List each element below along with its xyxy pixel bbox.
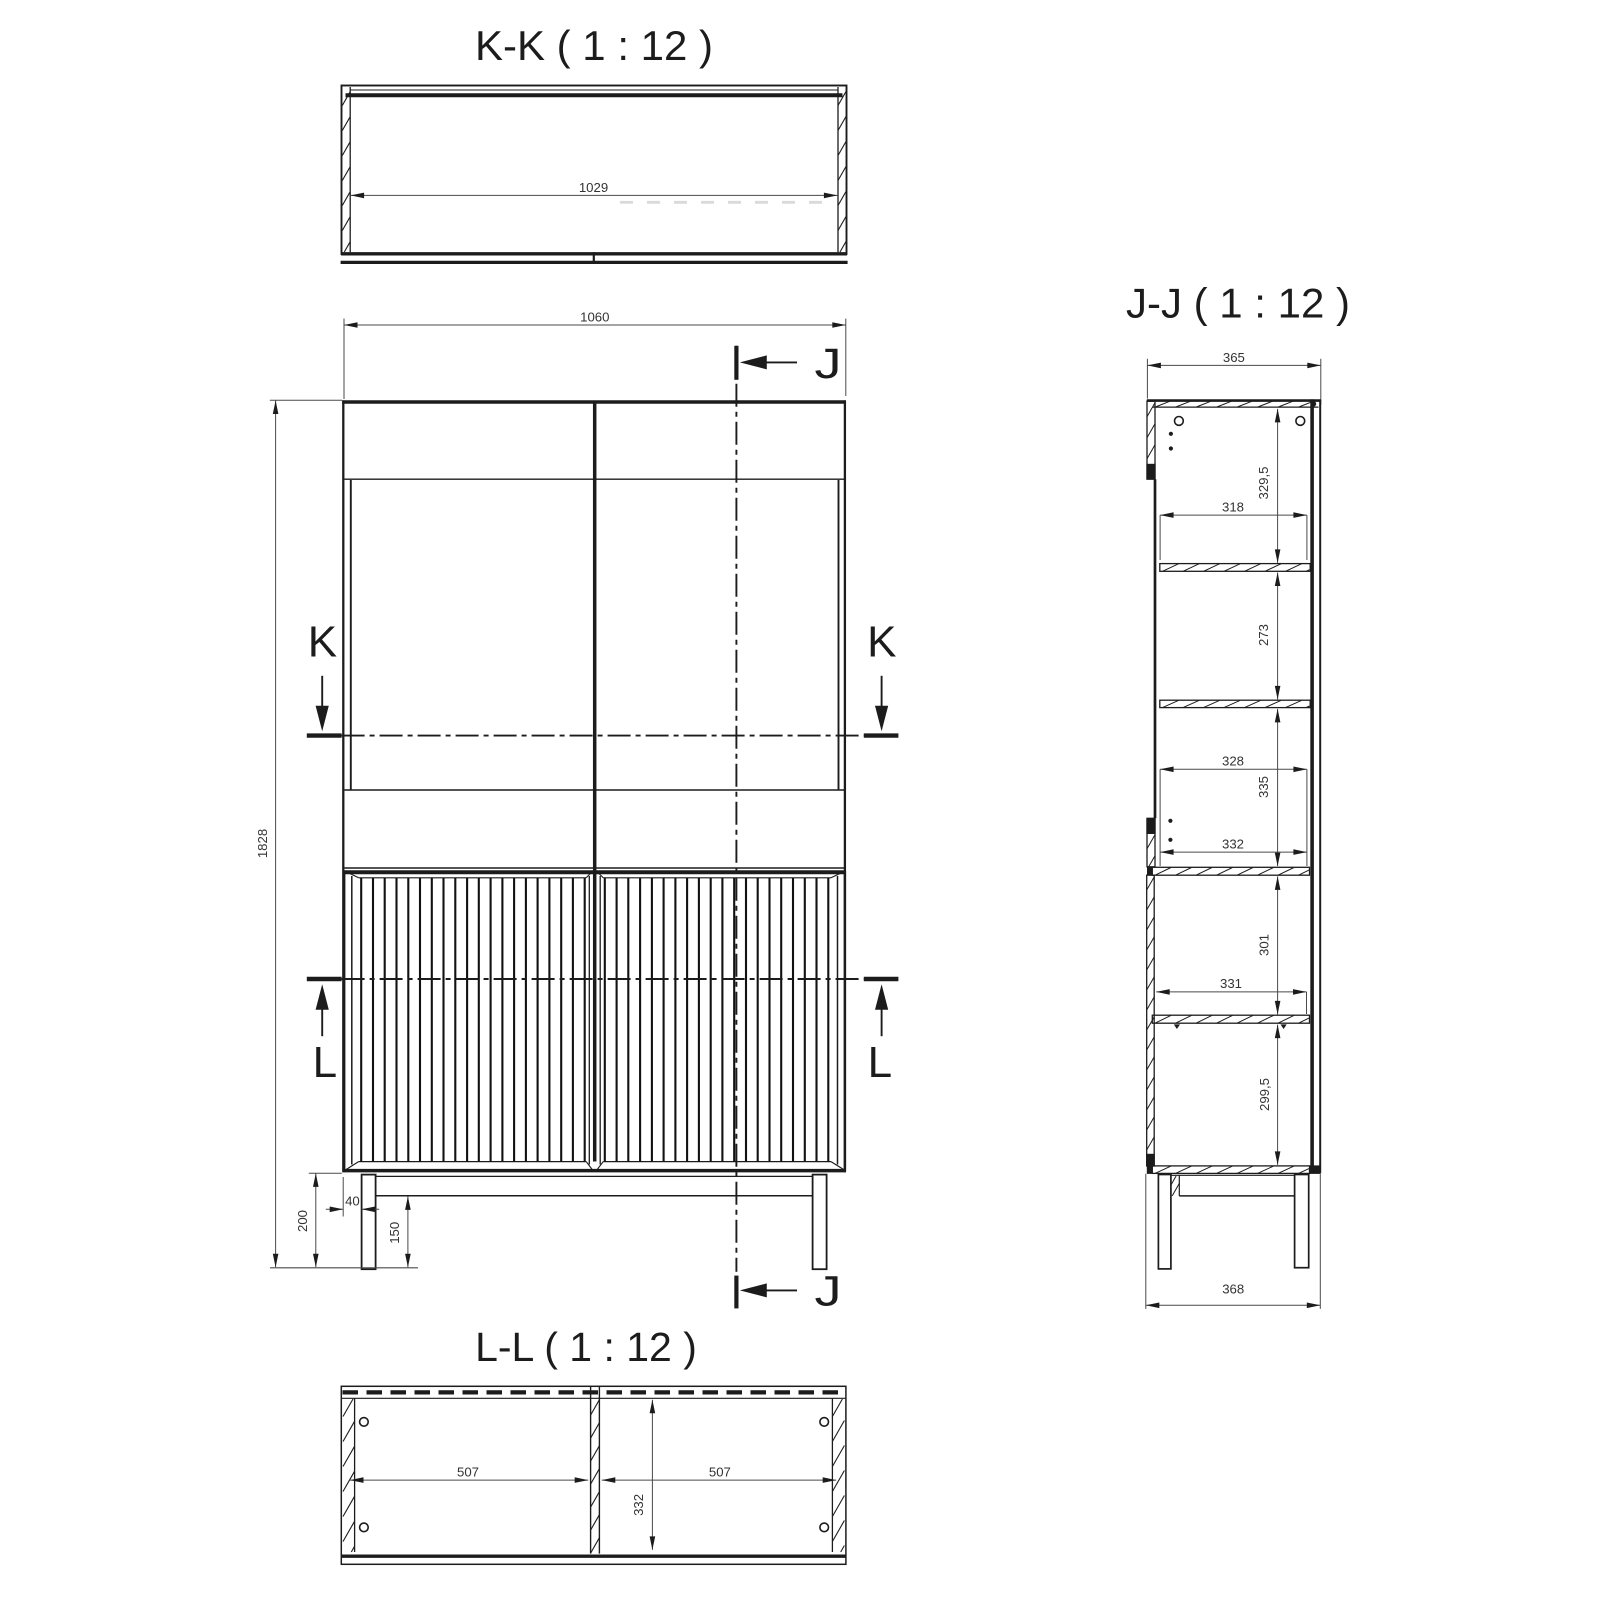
svg-text:507: 507 <box>457 1464 479 1479</box>
svg-text:507: 507 <box>709 1464 731 1479</box>
svg-text:1828: 1828 <box>255 829 270 858</box>
svg-text:331: 331 <box>1220 976 1242 991</box>
svg-text:318: 318 <box>1222 499 1244 514</box>
svg-text:329,5: 329,5 <box>1256 466 1271 499</box>
svg-text:332: 332 <box>631 1494 646 1516</box>
svg-text:40: 40 <box>345 1194 360 1209</box>
svg-text:328: 328 <box>1222 754 1244 769</box>
svg-text:J-J ( 1 : 12 ): J-J ( 1 : 12 ) <box>1126 280 1350 327</box>
svg-text:365: 365 <box>1223 350 1245 365</box>
svg-text:L: L <box>313 1038 337 1087</box>
svg-text:200: 200 <box>295 1210 310 1232</box>
svg-text:335: 335 <box>1256 776 1271 798</box>
svg-text:332: 332 <box>1222 836 1244 851</box>
svg-text:299,5: 299,5 <box>1257 1078 1272 1111</box>
svg-text:150: 150 <box>387 1222 402 1244</box>
svg-text:K: K <box>867 618 896 667</box>
svg-text:K: K <box>308 618 337 667</box>
svg-text:J: J <box>815 340 842 388</box>
svg-text:273: 273 <box>1256 624 1271 646</box>
svg-text:J: J <box>815 1268 842 1316</box>
svg-text:1060: 1060 <box>580 309 609 324</box>
svg-text:K-K ( 1 : 12 ): K-K ( 1 : 12 ) <box>475 22 713 69</box>
svg-text:1029: 1029 <box>579 180 608 195</box>
svg-text:368: 368 <box>1222 1282 1244 1297</box>
svg-text:L-L ( 1 : 12 ): L-L ( 1 : 12 ) <box>475 1324 697 1370</box>
svg-text:301: 301 <box>1256 934 1271 956</box>
svg-text:L: L <box>868 1038 892 1087</box>
